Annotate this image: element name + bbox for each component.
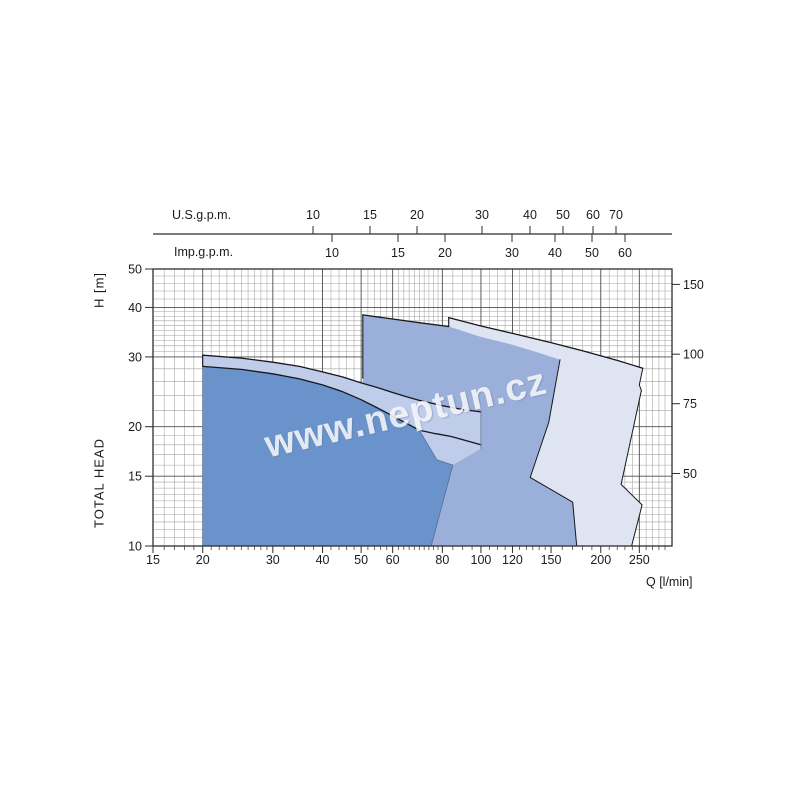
- us-gpm-tick-label: 40: [523, 208, 537, 222]
- y-axis-title: TOTAL HEAD: [92, 438, 107, 528]
- imp-gpm-scale-title: Imp.g.p.m.: [174, 245, 233, 259]
- y-right-tick-label: 100: [683, 348, 704, 362]
- y-axis-unit-label: H [m]: [92, 272, 107, 308]
- y-axis-right: 1501007550: [672, 278, 704, 481]
- x-tick-label: 20: [196, 553, 210, 567]
- imp-gpm-tick-label: 15: [391, 246, 405, 260]
- y-left-tick-label: 15: [128, 470, 142, 484]
- x-tick-label: 200: [590, 553, 611, 567]
- x-tick-label: 250: [629, 553, 650, 567]
- y-left-tick-label: 50: [128, 262, 142, 276]
- x-tick-label: 80: [435, 553, 449, 567]
- us-gpm-tick-label: 20: [410, 208, 424, 222]
- y-left-tick-label: 30: [128, 350, 142, 364]
- imp-gpm-tick-label: 30: [505, 246, 519, 260]
- y-axis-left: 504030201510: [128, 262, 153, 553]
- us-gpm-tick-label: 10: [306, 208, 320, 222]
- us-gpm-tick-label: 30: [475, 208, 489, 222]
- x-tick-label: 30: [266, 553, 280, 567]
- us-gpm-tick-label: 60: [586, 208, 600, 222]
- y-right-tick-label: 150: [683, 278, 704, 292]
- y-left-tick-label: 20: [128, 420, 142, 434]
- x-tick-label: 50: [354, 553, 368, 567]
- x-tick-label: 40: [316, 553, 330, 567]
- pump-chart-page: 1520304050608010012015020025050403020151…: [0, 0, 800, 800]
- x-tick-label: 120: [502, 553, 523, 567]
- imp-gpm-tick-label: 50: [585, 246, 599, 260]
- x-tick-label: 100: [471, 553, 492, 567]
- imp-gpm-tick-label: 20: [438, 246, 452, 260]
- us-gpm-tick-label: 15: [363, 208, 377, 222]
- us-gpm-scale-title: U.S.g.p.m.: [172, 208, 231, 222]
- imp-gpm-tick-label: 40: [548, 246, 562, 260]
- us-gpm-tick-label: 50: [556, 208, 570, 222]
- y-right-tick-label: 50: [683, 467, 697, 481]
- us-gpm-tick-label: 70: [609, 208, 623, 222]
- x-tick-label: 150: [541, 553, 562, 567]
- x-tick-label: 60: [386, 553, 400, 567]
- x-axis-bottom: 15203040506080100120150200250: [146, 546, 665, 567]
- y-left-tick-label: 40: [128, 301, 142, 315]
- y-left-tick-label: 10: [128, 539, 142, 553]
- imp-gpm-tick-label: 10: [325, 246, 339, 260]
- x-axis-title: Q [l/min]: [646, 575, 693, 589]
- y-right-tick-label: 75: [683, 397, 697, 411]
- x-tick-label: 15: [146, 553, 160, 567]
- imp-gpm-tick-label: 60: [618, 246, 632, 260]
